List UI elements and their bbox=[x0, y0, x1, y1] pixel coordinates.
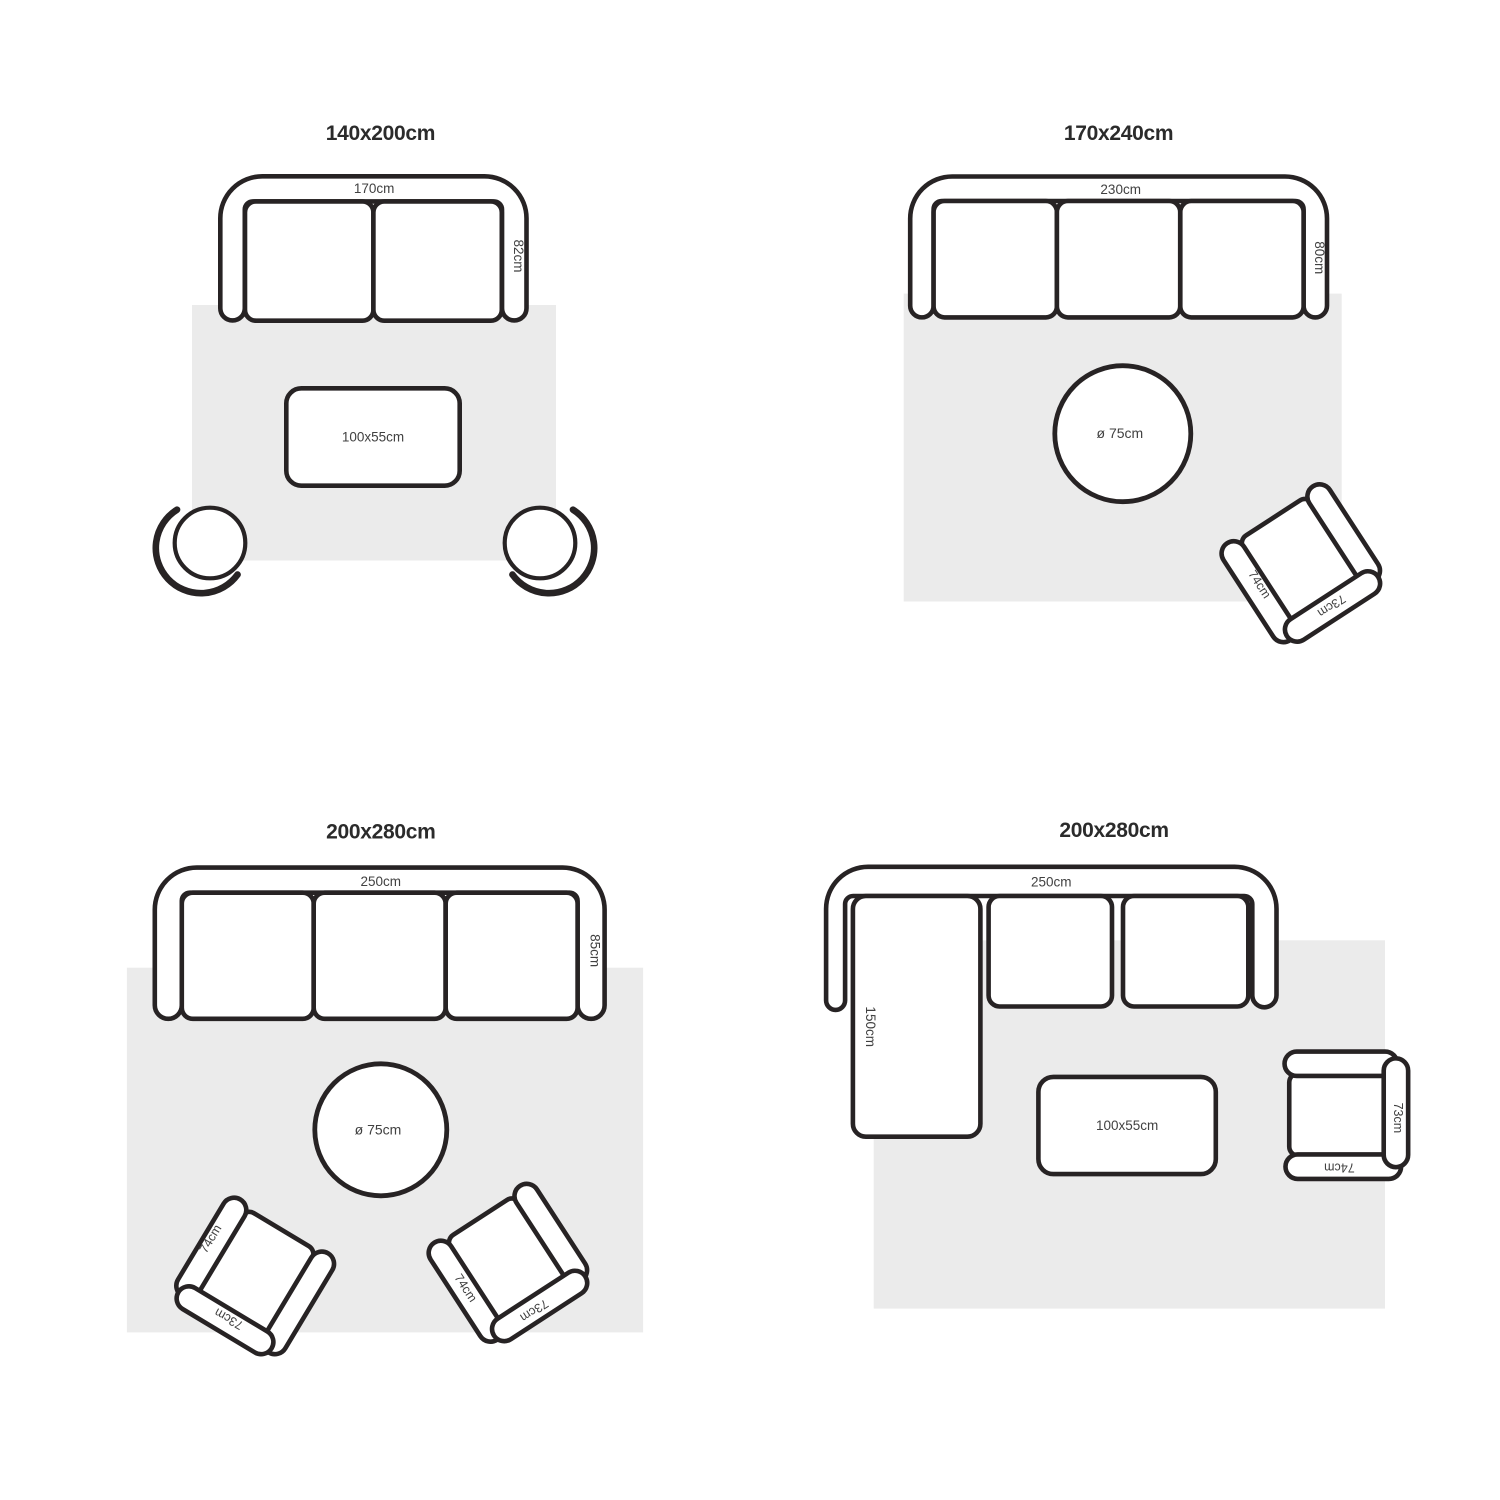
svg-text:82cm: 82cm bbox=[511, 239, 526, 272]
svg-text:100x55cm: 100x55cm bbox=[1096, 1118, 1158, 1133]
svg-text:170x240cm: 170x240cm bbox=[1064, 122, 1173, 145]
svg-text:150cm: 150cm bbox=[863, 1006, 878, 1047]
svg-text:250cm: 250cm bbox=[361, 874, 402, 889]
svg-text:230cm: 230cm bbox=[1100, 182, 1141, 197]
svg-text:250cm: 250cm bbox=[1031, 875, 1072, 890]
svg-text:85cm: 85cm bbox=[588, 934, 603, 967]
svg-text:100x55cm: 100x55cm bbox=[342, 430, 404, 445]
svg-text:ø 75cm: ø 75cm bbox=[1097, 425, 1144, 441]
svg-text:140x200cm: 140x200cm bbox=[326, 122, 435, 145]
svg-text:74cm: 74cm bbox=[1324, 1161, 1355, 1175]
svg-text:200x280cm: 200x280cm bbox=[1059, 819, 1168, 842]
svg-text:80cm: 80cm bbox=[1312, 241, 1327, 274]
svg-text:170cm: 170cm bbox=[354, 181, 395, 196]
svg-text:200x280cm: 200x280cm bbox=[326, 821, 435, 844]
svg-text:73cm: 73cm bbox=[1391, 1103, 1405, 1134]
svg-text:ø 75cm: ø 75cm bbox=[355, 1121, 402, 1137]
